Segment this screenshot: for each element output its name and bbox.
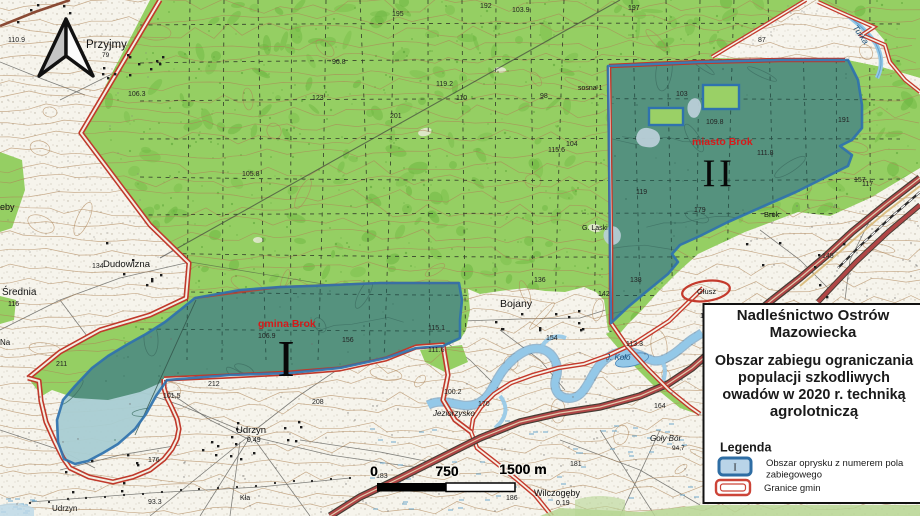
svg-text:Przyjmy: Przyjmy	[86, 39, 127, 51]
svg-text:Głusz: Głusz	[697, 287, 716, 296]
svg-text:113.3: 113.3	[626, 341, 643, 348]
svg-text:105.8: 105.8	[242, 171, 260, 178]
svg-text:164: 164	[654, 403, 666, 410]
svg-text:agrolotniczą: agrolotniczą	[770, 403, 859, 420]
svg-text:115.6: 115.6	[548, 147, 565, 154]
svg-text:181: 181	[570, 461, 582, 468]
svg-text:212: 212	[208, 381, 220, 388]
svg-text:Na: Na	[0, 338, 11, 347]
svg-text:Nadleśnictwo Ostrów: Nadleśnictwo Ostrów	[737, 307, 890, 324]
svg-text:owadów w 2020 r. techniką: owadów w 2020 r. techniką	[722, 387, 906, 403]
svg-text:119: 119	[636, 189, 647, 196]
svg-text:103: 103	[676, 91, 688, 98]
svg-text:201: 201	[390, 113, 402, 120]
svg-text:1500 m: 1500 m	[499, 461, 546, 477]
svg-text:Udrzyn: Udrzyn	[52, 504, 77, 513]
svg-text:156: 156	[342, 337, 354, 344]
svg-text:208: 208	[312, 399, 324, 406]
svg-text:154: 154	[546, 335, 558, 342]
svg-text:197: 197	[628, 5, 640, 12]
svg-text:zabiegowego: zabiegowego	[766, 470, 822, 481]
svg-text:111.8: 111.8	[757, 150, 774, 157]
svg-text:sosna 1: sosna 1	[578, 85, 603, 92]
svg-text:Bojany: Bojany	[500, 298, 533, 310]
svg-text:179: 179	[694, 207, 706, 214]
svg-text:106.9: 106.9	[258, 333, 276, 340]
svg-text:0: 0	[370, 463, 378, 479]
svg-text:109.8: 109.8	[706, 119, 724, 126]
svg-text:117: 117	[862, 181, 873, 188]
svg-text:195: 195	[392, 11, 404, 18]
svg-text:Obszar oprysku z numerem pola: Obszar oprysku z numerem pola	[766, 458, 904, 469]
svg-text:Jeziorzysko: Jeziorzysko	[432, 409, 475, 418]
svg-text:0,19: 0,19	[556, 500, 570, 507]
svg-text:populacji szkodliwych: populacji szkodliwych	[738, 370, 890, 386]
svg-text:0,49: 0,49	[247, 437, 261, 444]
svg-text:100.2: 100.2	[444, 389, 462, 396]
svg-text:115.1: 115.1	[428, 325, 445, 332]
svg-text:II: II	[703, 152, 736, 195]
svg-text:110.9: 110.9	[8, 37, 25, 44]
svg-text:110: 110	[456, 95, 467, 102]
svg-text:87: 87	[758, 37, 766, 44]
svg-text:Granice gmin: Granice gmin	[764, 483, 821, 494]
svg-text:119.2: 119.2	[436, 81, 453, 88]
svg-text:G. Laski: G. Laski	[582, 225, 608, 232]
svg-text:Wilczogęby: Wilczogęby	[534, 488, 581, 498]
svg-text:Udrzyn: Udrzyn	[236, 425, 266, 436]
svg-text:gmina Brok: gmina Brok	[258, 318, 316, 330]
svg-text:eby: eby	[0, 202, 15, 212]
svg-text:186: 186	[506, 495, 518, 502]
svg-text:94,7: 94,7	[672, 445, 685, 452]
svg-text:170: 170	[478, 401, 490, 408]
svg-text:106.3: 106.3	[128, 91, 146, 98]
svg-text:98: 98	[540, 93, 548, 100]
svg-text:104: 104	[566, 141, 578, 148]
svg-text:111.6: 111.6	[428, 347, 445, 354]
svg-text:138: 138	[630, 277, 642, 284]
svg-text:I: I	[733, 463, 736, 474]
svg-text:Mazowiecka: Mazowiecka	[770, 324, 857, 341]
svg-text:750: 750	[435, 463, 459, 479]
svg-text:191: 191	[838, 117, 850, 124]
svg-text:Goły Bór: Goły Bór	[650, 434, 681, 443]
svg-text:96.8: 96.8	[332, 59, 346, 66]
svg-text:211: 211	[56, 361, 67, 368]
svg-text:142: 142	[598, 291, 610, 298]
svg-text:Legenda: Legenda	[720, 441, 772, 455]
svg-text:79: 79	[102, 52, 110, 59]
svg-text:116: 116	[8, 301, 19, 308]
svg-text:J. Koło: J. Koło	[605, 353, 631, 362]
svg-text:I: I	[277, 331, 294, 388]
svg-text:136: 136	[534, 277, 546, 284]
svg-text:Średnia: Średnia	[2, 285, 37, 298]
svg-text:103.9: 103.9	[512, 7, 530, 14]
svg-text:Dudowizna: Dudowizna	[103, 259, 151, 270]
svg-text:miasto Brok: miasto Brok	[692, 136, 753, 148]
svg-text:Kła: Kła	[240, 495, 250, 502]
svg-text:Obszar zabiegu ograniczania: Obszar zabiegu ograniczania	[715, 353, 914, 369]
svg-text:123: 123	[312, 95, 324, 102]
svg-text:192: 192	[480, 3, 492, 10]
svg-text:Brok: Brok	[764, 210, 780, 219]
svg-text:93.3: 93.3	[148, 499, 162, 506]
svg-text:176: 176	[148, 457, 160, 464]
svg-text:145: 145	[822, 253, 834, 260]
svg-text:101,5: 101,5	[163, 393, 181, 400]
